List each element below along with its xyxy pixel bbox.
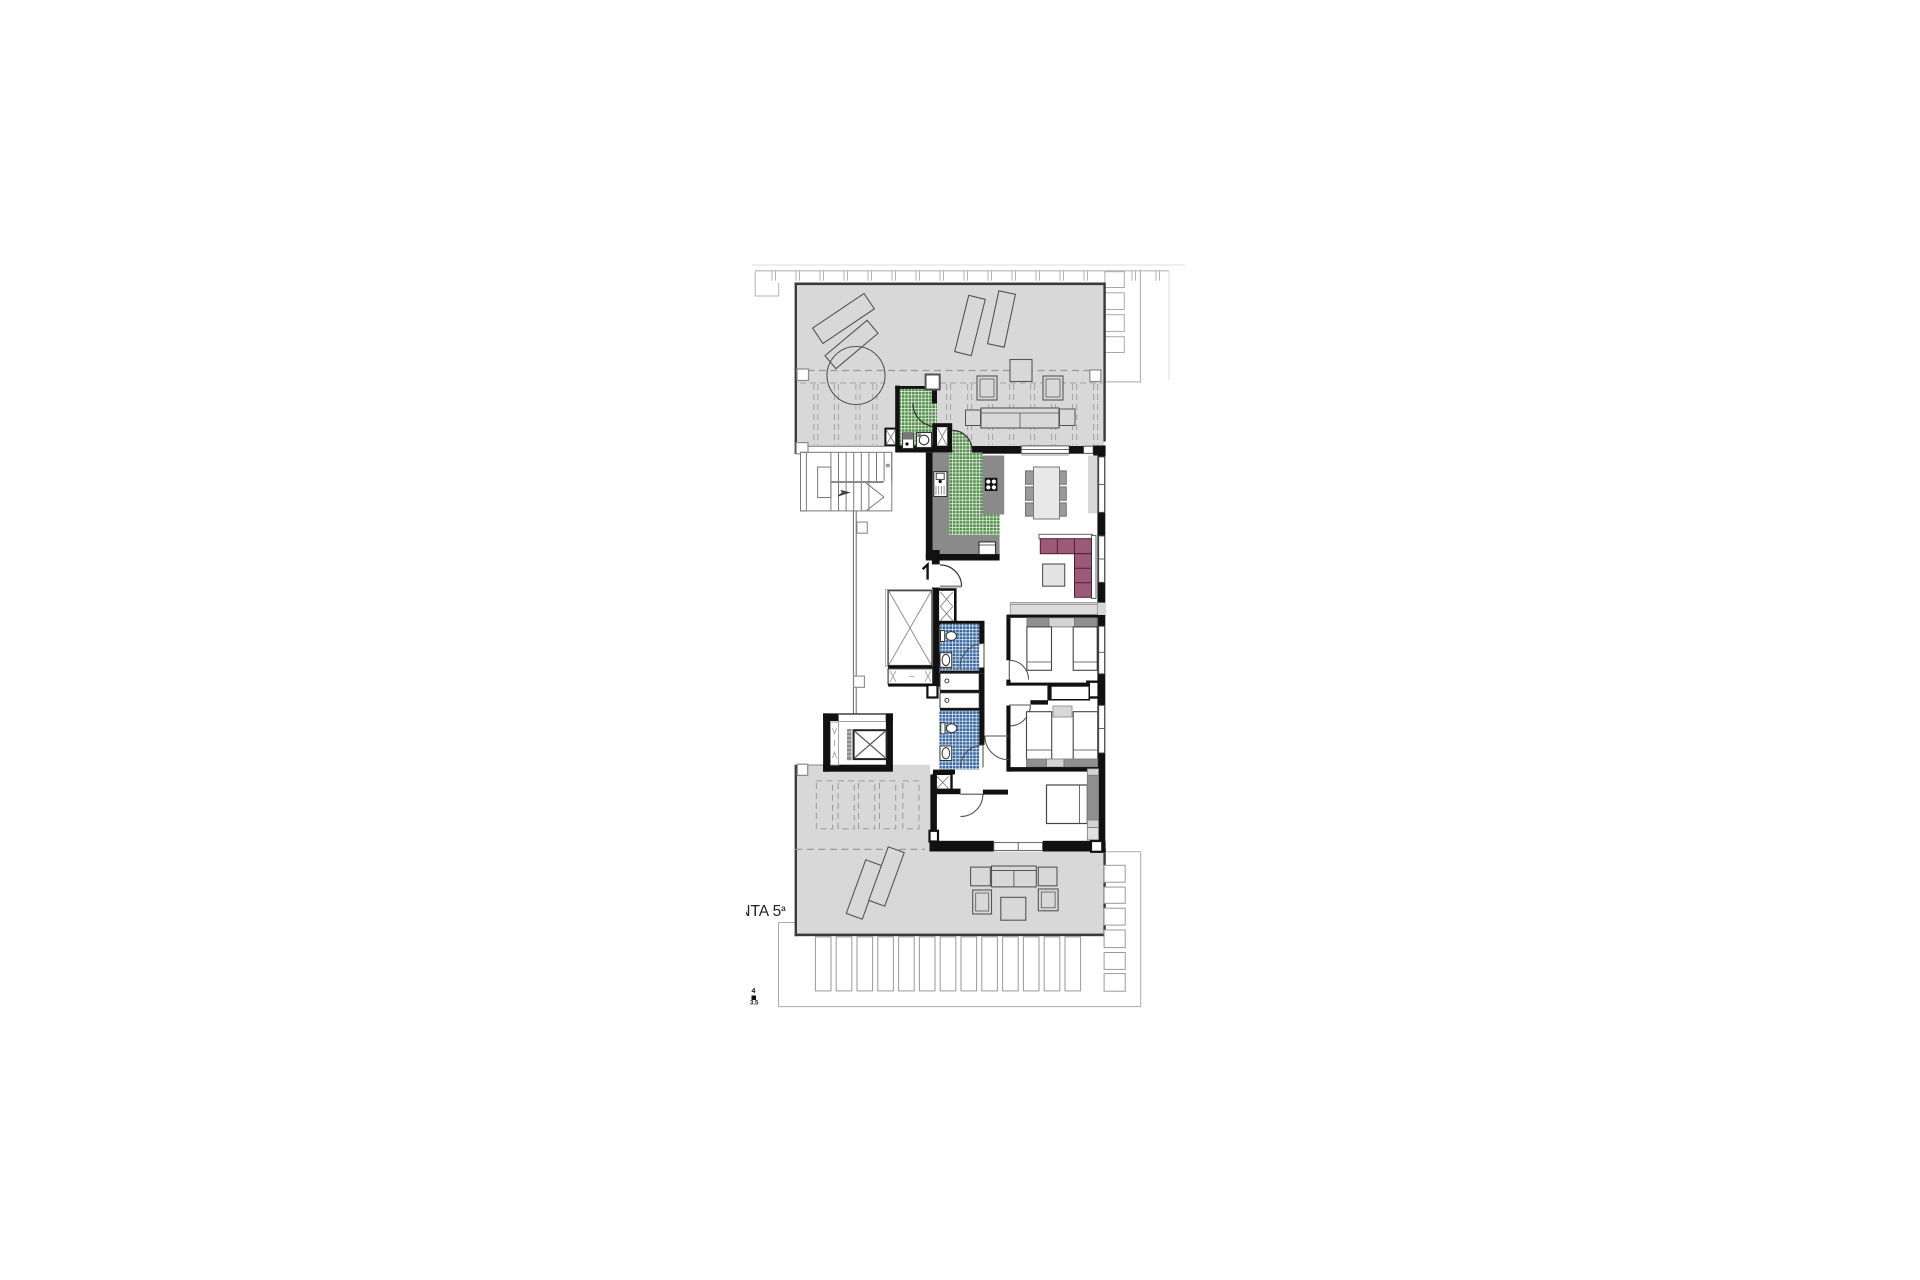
svg-text:4: 4	[752, 988, 756, 995]
svg-text:3.5: 3.5	[750, 1001, 759, 1007]
